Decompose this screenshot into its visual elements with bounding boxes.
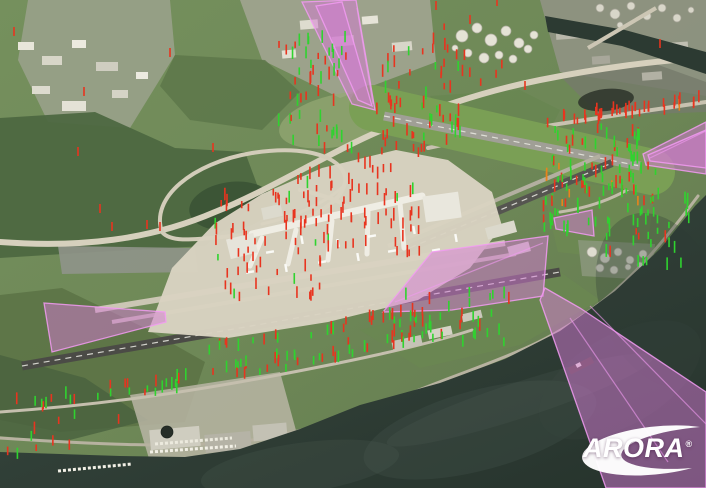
storage-tank	[596, 4, 604, 12]
storage-tank	[524, 45, 532, 53]
storage-tank	[161, 426, 173, 438]
building	[32, 86, 50, 94]
building	[422, 192, 461, 223]
building	[62, 101, 86, 111]
building	[18, 42, 34, 50]
storage-tank	[485, 34, 497, 46]
storage-tank	[514, 38, 524, 48]
building	[592, 55, 611, 64]
storage-tank	[509, 55, 517, 63]
arora-logo: ARORA®	[550, 418, 704, 476]
storage-tank	[456, 30, 468, 42]
storage-tank	[501, 26, 511, 36]
concourse-building	[367, 211, 368, 254]
storage-tank	[472, 23, 482, 33]
storage-tank	[530, 31, 538, 39]
building	[362, 15, 379, 24]
building	[112, 90, 128, 98]
storage-tank	[627, 2, 635, 10]
storage-tank	[688, 7, 694, 13]
registered-mark: ®	[686, 439, 693, 449]
building	[72, 40, 86, 48]
building	[96, 62, 118, 71]
aerial-map[interactable]	[0, 0, 706, 488]
storage-tank	[610, 9, 620, 19]
building	[136, 72, 148, 79]
building	[642, 71, 663, 80]
storage-tank	[658, 4, 666, 12]
storage-tank	[673, 14, 681, 22]
building	[42, 56, 62, 65]
building	[282, 49, 297, 58]
arora-logo-text: ARORA®	[583, 429, 693, 463]
storage-tank	[587, 247, 597, 257]
logo-wordmark: ARORA	[583, 433, 685, 463]
storage-tank	[479, 53, 489, 63]
storage-tank	[495, 51, 503, 59]
aerial-visualization-page: ARORA®	[0, 0, 706, 488]
